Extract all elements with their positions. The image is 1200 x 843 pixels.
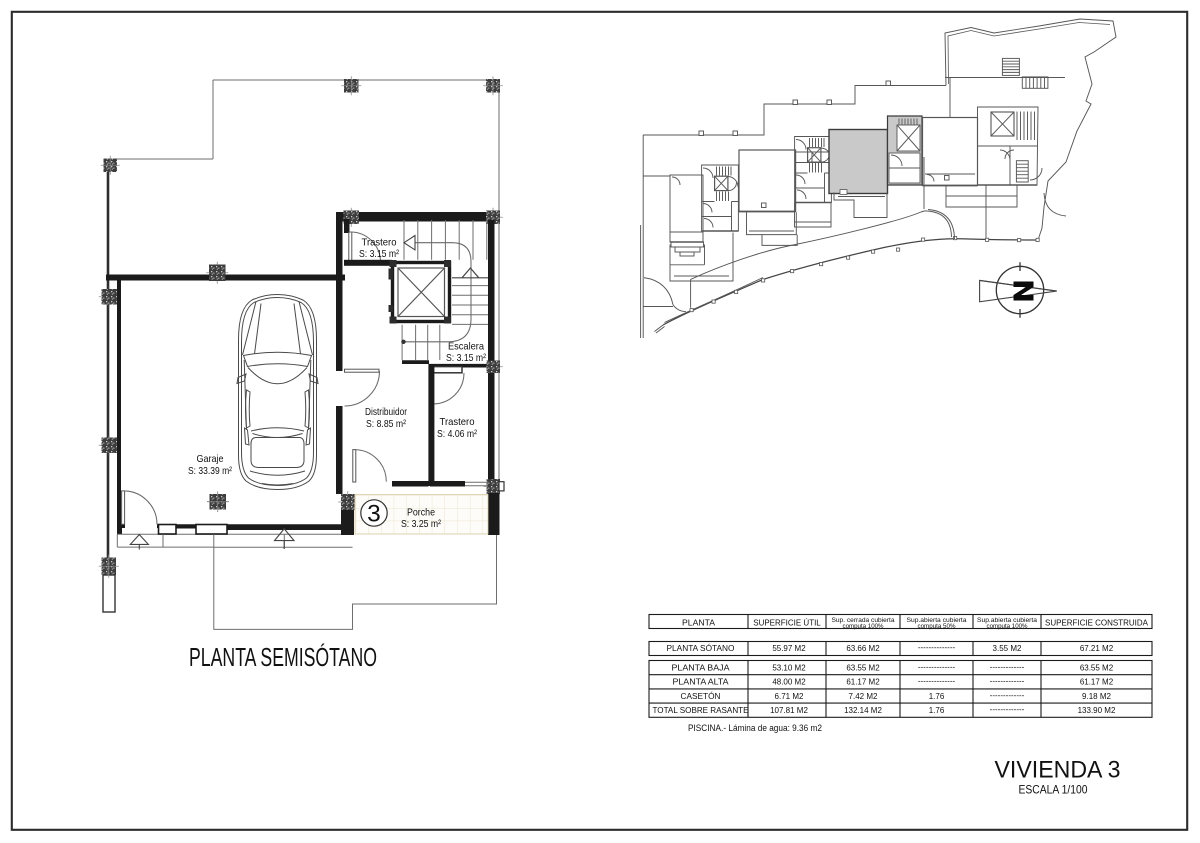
svg-text:55.97 M2: 55.97 M2 [772,644,806,653]
svg-text:S: 3.25 m²: S: 3.25 m² [401,519,442,530]
svg-text:computa 100%: computa 100% [987,623,1028,630]
svg-text:PLANTA: PLANTA [682,617,715,627]
svg-text:9.18 M2: 9.18 M2 [1082,692,1111,701]
svg-text:S: 8.85 m²: S: 8.85 m² [366,418,406,430]
svg-text:S: 3.15 m²: S: 3.15 m² [446,352,486,364]
svg-text:-------------: ------------- [990,663,1025,672]
svg-text:computa 100%: computa 100% [843,623,884,630]
svg-text:7.42 M2: 7.42 M2 [849,692,878,701]
svg-text:107.81 M2: 107.81 M2 [770,706,808,715]
svg-text:53.10 M2: 53.10 M2 [772,664,806,673]
svg-text:SUPERFICIE CONSTRUIDA: SUPERFICIE CONSTRUIDA [1045,617,1148,627]
svg-text:-------------: ------------- [990,677,1025,686]
svg-text:ESCALA 1/100: ESCALA 1/100 [1019,783,1088,797]
svg-text:132.14 M2: 132.14 M2 [844,706,882,715]
svg-text:S: 4.06 m²: S: 4.06 m² [437,428,477,440]
svg-text:63.55 M2: 63.55 M2 [1080,664,1114,673]
svg-text:3: 3 [367,501,381,528]
svg-text:63.66 M2: 63.66 M2 [846,644,880,653]
svg-text:Trastero: Trastero [362,237,397,249]
svg-text:Trastero: Trastero [440,416,475,428]
svg-text:--------------: -------------- [918,643,956,652]
svg-text:Garaje: Garaje [197,453,224,465]
svg-text:S: 33.39 m²: S: 33.39 m² [188,465,232,477]
svg-text:Distribuidor: Distribuidor [365,406,407,418]
svg-text:Porche: Porche [407,508,435,519]
svg-text:SUPERFICIE ÚTIL: SUPERFICIE ÚTIL [753,617,821,627]
svg-text:-------------: ------------- [990,705,1025,714]
svg-text:CASETÓN: CASETÓN [681,692,721,701]
svg-text:-------------: ------------- [990,691,1025,700]
svg-text:48.00 M2: 48.00 M2 [772,678,806,687]
svg-text:63.55 M2: 63.55 M2 [846,664,880,673]
svg-text:S: 3.15 m²: S: 3.15 m² [359,248,399,260]
svg-text:PISCINA.- Lámina de agua: 9.36: PISCINA.- Lámina de agua: 9.36 m2 [688,723,822,733]
svg-text:3.55 M2: 3.55 M2 [993,644,1022,653]
svg-text:--------------: -------------- [918,663,956,672]
svg-text:--------------: -------------- [918,677,956,686]
svg-text:61.17 M2: 61.17 M2 [846,678,880,687]
svg-text:6.71 M2: 6.71 M2 [775,692,804,701]
svg-text:PLANTA BAJA: PLANTA BAJA [672,664,731,673]
svg-text:computa 50%: computa 50% [918,623,956,630]
svg-text:1.76: 1.76 [929,692,945,701]
svg-text:67.21 M2: 67.21 M2 [1080,644,1114,653]
svg-text:61.17 M2: 61.17 M2 [1080,678,1114,687]
svg-text:TOTAL SOBRE RASANTE: TOTAL SOBRE RASANTE [653,706,749,715]
svg-text:1.76: 1.76 [929,706,945,715]
svg-text:PLANTA SÓTANO: PLANTA SÓTANO [667,644,735,653]
svg-text:133.90 M2: 133.90 M2 [1078,706,1116,715]
svg-text:PLANTA ALTA: PLANTA ALTA [673,678,730,687]
svg-text:Escalera: Escalera [448,341,484,353]
svg-text:VIVIENDA 3: VIVIENDA 3 [995,757,1121,784]
svg-text:PLANTA SEMISÓTANO: PLANTA SEMISÓTANO [189,643,377,672]
